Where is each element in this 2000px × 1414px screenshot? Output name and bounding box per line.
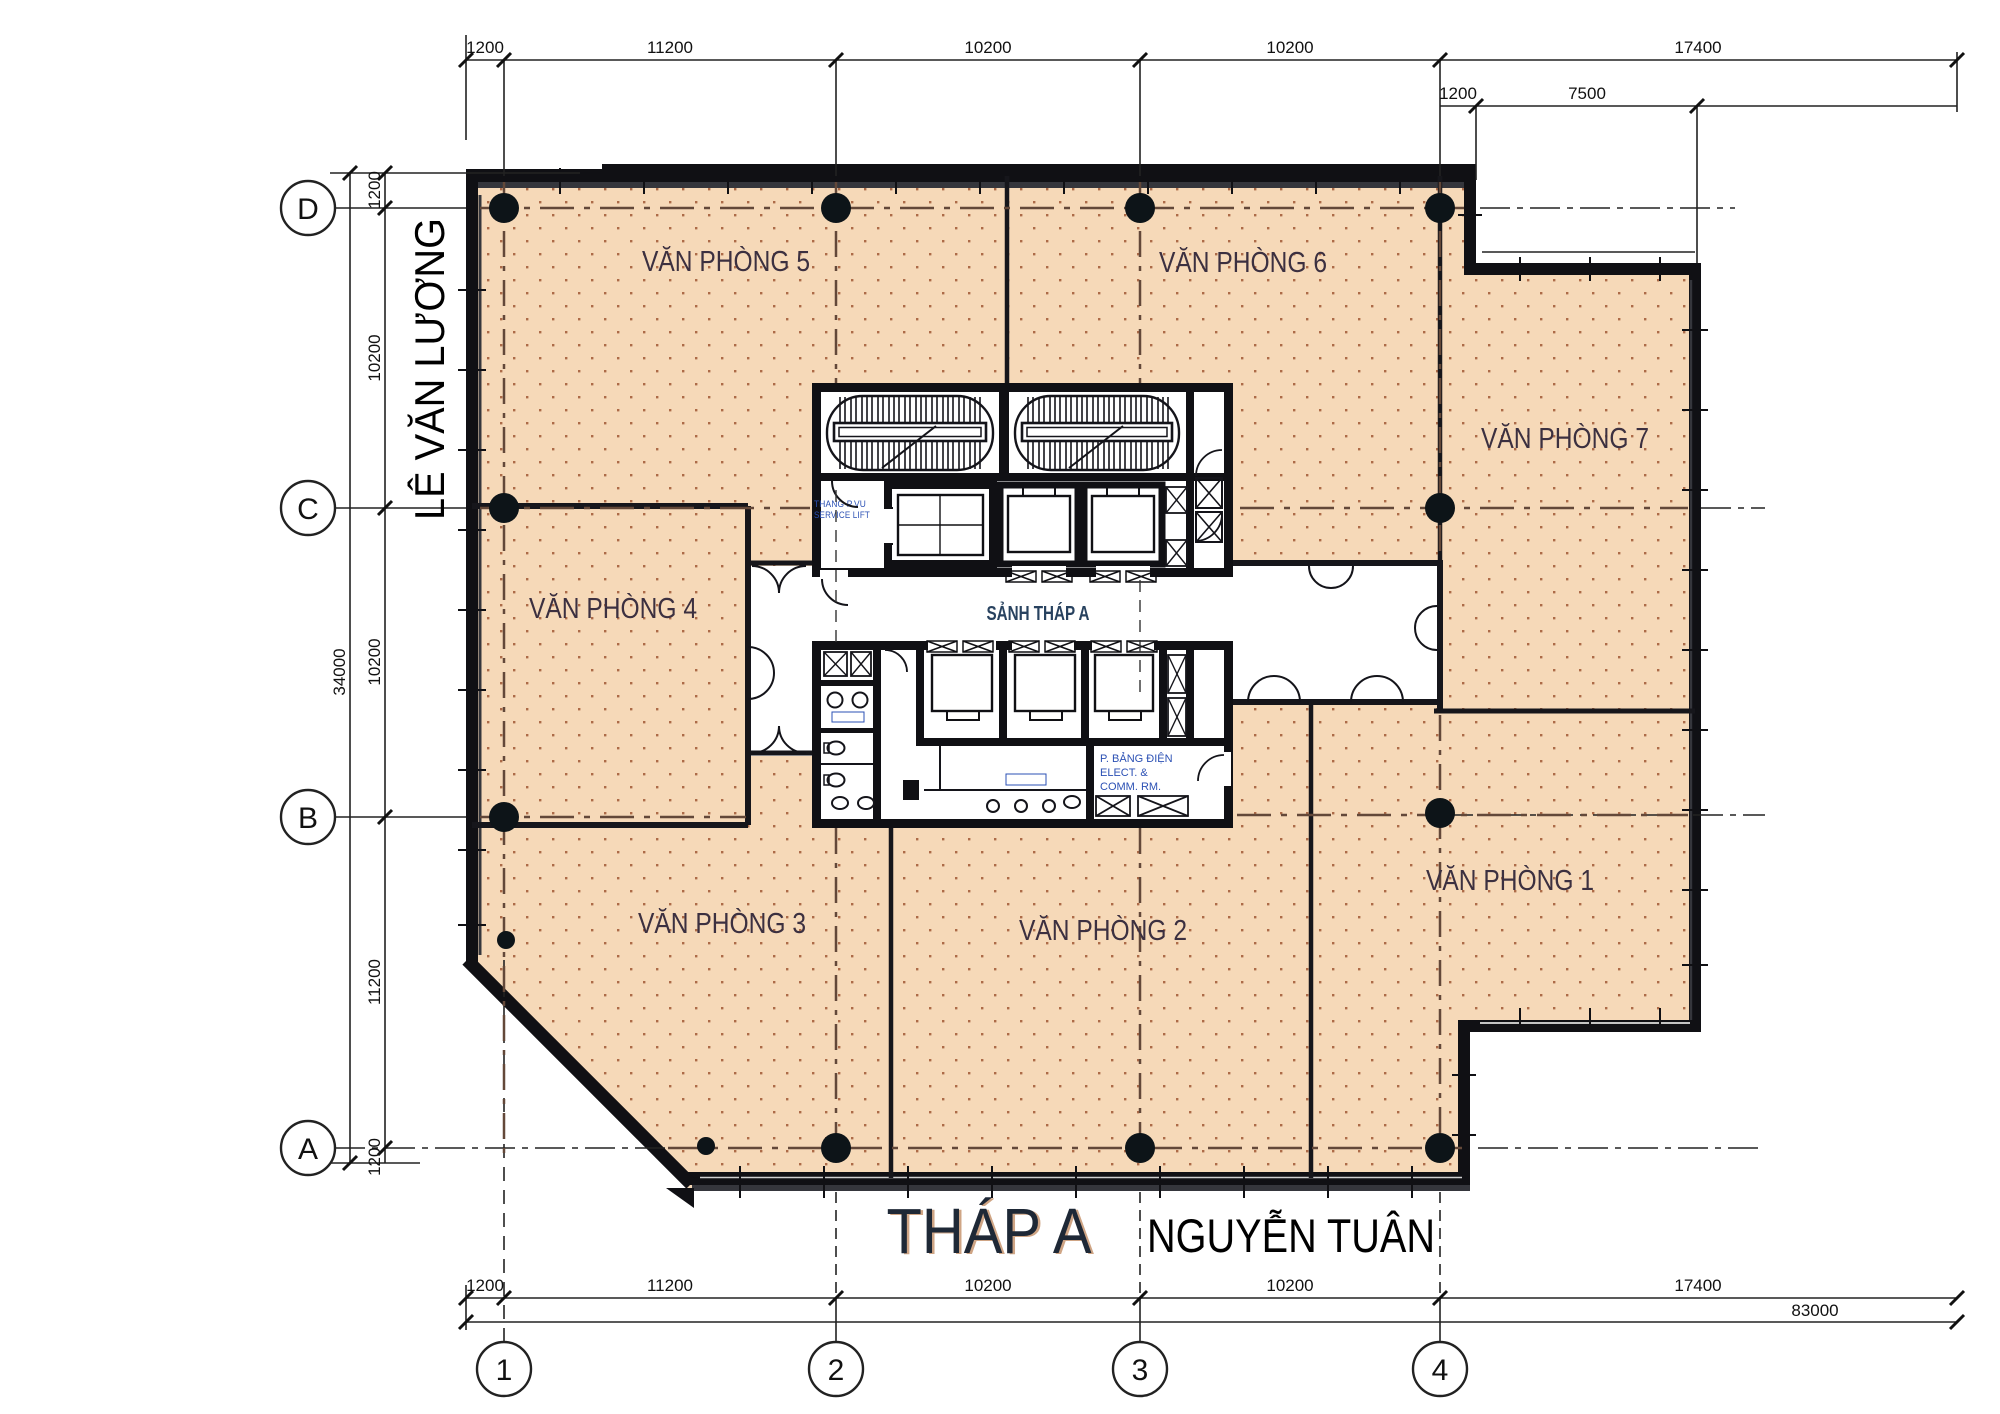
svg-text:VĂN PHÒNG 4: VĂN PHÒNG 4 (529, 592, 697, 625)
svg-text:VĂN PHÒNG 3: VĂN PHÒNG 3 (638, 907, 806, 940)
svg-text:C: C (297, 493, 319, 526)
svg-text:34000: 34000 (330, 648, 349, 695)
svg-text:VĂN PHÒNG 1: VĂN PHÒNG 1 (1426, 864, 1594, 897)
svg-text:10200: 10200 (964, 38, 1011, 57)
svg-text:10200: 10200 (365, 638, 384, 685)
svg-text:THÁP A: THÁP A (887, 1195, 1092, 1267)
svg-text:1200: 1200 (365, 171, 384, 209)
svg-text:ELECT. &: ELECT. & (1100, 767, 1148, 779)
svg-text:11200: 11200 (365, 959, 384, 1005)
svg-text:VĂN PHÒNG 2: VĂN PHÒNG 2 (1019, 914, 1187, 947)
svg-text:4: 4 (1432, 1354, 1449, 1387)
svg-text:3: 3 (1132, 1354, 1149, 1387)
svg-text:7500: 7500 (1568, 84, 1606, 103)
svg-text:10200: 10200 (1266, 1276, 1313, 1295)
svg-text:NGUYỄN TUÂN: NGUYỄN TUÂN (1147, 1209, 1435, 1262)
svg-text:10200: 10200 (1266, 38, 1313, 57)
svg-text:D: D (297, 193, 319, 226)
svg-text:10200: 10200 (964, 1276, 1011, 1295)
svg-text:COMM. RM.: COMM. RM. (1100, 781, 1161, 793)
svg-text:1: 1 (496, 1354, 513, 1387)
svg-text:1200: 1200 (365, 1138, 384, 1176)
svg-text:SERVICE LIFT: SERVICE LIFT (814, 510, 870, 521)
svg-text:10200: 10200 (365, 334, 384, 381)
svg-text:17400: 17400 (1674, 1276, 1721, 1295)
svg-text:SẢNH THÁP A: SẢNH THÁP A (987, 602, 1090, 625)
svg-text:VĂN PHÒNG 6: VĂN PHÒNG 6 (1159, 246, 1327, 279)
svg-text:VĂN PHÒNG 7: VĂN PHÒNG 7 (1481, 422, 1649, 455)
svg-text:1200: 1200 (466, 1276, 504, 1295)
svg-text:1200: 1200 (1439, 84, 1477, 103)
svg-text:LÊ VĂN LƯƠNG: LÊ VĂN LƯƠNG (406, 218, 453, 520)
svg-text:VĂN PHÒNG 5: VĂN PHÒNG 5 (642, 245, 810, 278)
svg-text:P. BẢNG ĐIỆN: P. BẢNG ĐIỆN (1100, 752, 1173, 765)
svg-text:83000: 83000 (1791, 1301, 1838, 1320)
svg-text:17400: 17400 (1674, 38, 1721, 57)
svg-text:2: 2 (828, 1354, 845, 1387)
svg-text:A: A (298, 1133, 318, 1166)
svg-text:11200: 11200 (647, 1276, 693, 1295)
svg-text:B: B (298, 802, 318, 835)
svg-text:1200: 1200 (466, 38, 504, 57)
svg-text:11200: 11200 (647, 38, 693, 57)
